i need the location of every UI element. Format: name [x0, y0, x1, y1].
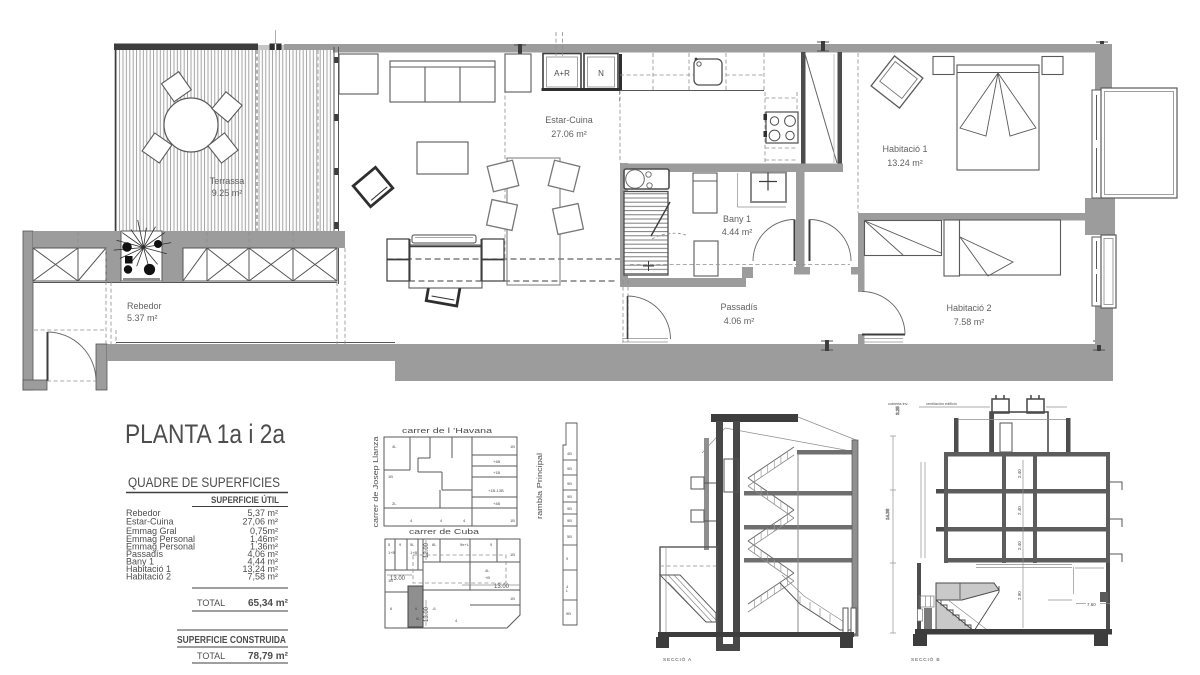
svg-text:5L: 5L: [410, 542, 415, 547]
svg-text:SECCIÓ B: SECCIÓ B: [911, 656, 940, 663]
svg-text:2L: 2L: [392, 501, 397, 506]
svg-text:TOTAL: TOTAL: [197, 598, 225, 608]
svg-text:2.90: 2.90: [1017, 591, 1022, 600]
svg-text:6L: 6L: [416, 616, 421, 621]
svg-text:carrer de l ’Havana: carrer de l ’Havana: [402, 428, 492, 435]
svg-text:27.06 m²: 27.06 m²: [551, 129, 587, 139]
svg-text:1B: 1B: [510, 552, 515, 557]
svg-text:1+B: 1+B: [410, 550, 418, 555]
svg-text:cubierta inv.: cubierta inv.: [888, 402, 908, 406]
svg-text:+4B: +4B: [493, 459, 501, 464]
svg-text:Terrassa: Terrassa: [210, 176, 245, 186]
svg-text:SUPERFICIE ÚTIL: SUPERFICIE ÚTIL: [211, 494, 279, 506]
svg-text:2.40: 2.40: [1017, 506, 1022, 515]
svg-text:TOTAL: TOTAL: [197, 651, 225, 661]
svg-text:7.58 m²: 7.58 m²: [954, 317, 985, 327]
svg-text:carrer de Josep Llanza: carrer de Josep Llanza: [373, 436, 380, 527]
svg-text:ventilación edificio: ventilación edificio: [926, 402, 957, 406]
svg-text:8L: 8L: [432, 542, 437, 547]
svg-text:A+R: A+R: [554, 69, 570, 78]
svg-text:Passadís: Passadís: [720, 302, 758, 312]
svg-text:SUPERFICIE CONSTRUIDA: SUPERFICIE CONSTRUIDA: [177, 635, 286, 646]
svg-text:Rebedor: Rebedor: [127, 301, 162, 311]
svg-text:1B: 1B: [510, 518, 515, 523]
svg-text:5B: 5B: [567, 534, 572, 539]
svg-text:Habitació 2: Habitació 2: [126, 572, 171, 582]
svg-text:QUADRE DE SUPERFICIES: QUADRE DE SUPERFICIES: [128, 475, 280, 490]
svg-text:4.44 m²: 4.44 m²: [722, 227, 753, 237]
svg-text:+1B-13B: +1B-13B: [488, 488, 504, 493]
svg-text:9e+L: 9e+L: [460, 542, 470, 547]
svg-text:5.37 m²: 5.37 m²: [127, 313, 158, 323]
svg-text:14.38: 14.38: [885, 508, 890, 520]
svg-text:13.24 m²: 13.24 m²: [887, 158, 923, 168]
svg-text:2.40: 2.40: [1017, 541, 1022, 550]
svg-text:carrer de Cuba: carrer de Cuba: [409, 529, 479, 536]
svg-text:4B: 4B: [567, 451, 572, 456]
svg-text:N: N: [598, 69, 604, 78]
svg-text:rambla Principal: rambla Principal: [537, 452, 544, 519]
svg-text:SECCIÓ A: SECCIÓ A: [663, 656, 692, 663]
svg-text:9.25 m²: 9.25 m²: [212, 188, 243, 198]
svg-text:7.60: 7.60: [1087, 602, 1096, 607]
svg-text:Habitació 2: Habitació 2: [946, 303, 991, 313]
svg-text:4L: 4L: [392, 444, 397, 449]
svg-text:7,58 m²: 7,58 m²: [247, 572, 278, 582]
svg-text:13.00: 13.00: [424, 606, 430, 622]
svg-text:12.00: 12.00: [424, 542, 430, 558]
svg-text:9B: 9B: [567, 466, 572, 471]
svg-text:9B: 9B: [567, 518, 572, 523]
svg-text:Estar-Cuina: Estar-Cuina: [545, 115, 593, 125]
svg-text:+B: +B: [485, 575, 490, 580]
svg-text:4L: 4L: [485, 568, 490, 573]
svg-text:2.40: 2.40: [1017, 469, 1022, 478]
svg-text:PLANTA 1a i 2a: PLANTA 1a i 2a: [125, 419, 286, 449]
svg-text:9B: 9B: [567, 506, 572, 511]
svg-text:1+B: 1+B: [388, 550, 396, 555]
svg-text:1B: 1B: [510, 596, 515, 601]
svg-text:Estar-Cuina: Estar-Cuina: [126, 517, 174, 527]
svg-text:Habitació 1: Habitació 1: [882, 144, 927, 154]
svg-text:78,79 m²: 78,79 m²: [248, 651, 289, 662]
svg-text:65,34 m²: 65,34 m²: [248, 598, 289, 609]
svg-text:1B: 1B: [388, 474, 393, 479]
svg-text:9B: 9B: [566, 611, 571, 616]
svg-text:3.25: 3.25: [895, 406, 900, 415]
svg-text:+1B: +1B: [493, 470, 501, 475]
svg-text:1B: 1B: [388, 578, 393, 583]
svg-text:+4B: +4B: [493, 501, 501, 506]
svg-text:9B: 9B: [567, 481, 572, 486]
svg-text:27,06 m²: 27,06 m²: [242, 517, 278, 527]
svg-text:Bany 1: Bany 1: [723, 214, 751, 224]
svg-text:1B: 1B: [510, 444, 515, 449]
svg-text:4.06 m²: 4.06 m²: [724, 316, 755, 326]
svg-text:9B: 9B: [567, 494, 572, 499]
